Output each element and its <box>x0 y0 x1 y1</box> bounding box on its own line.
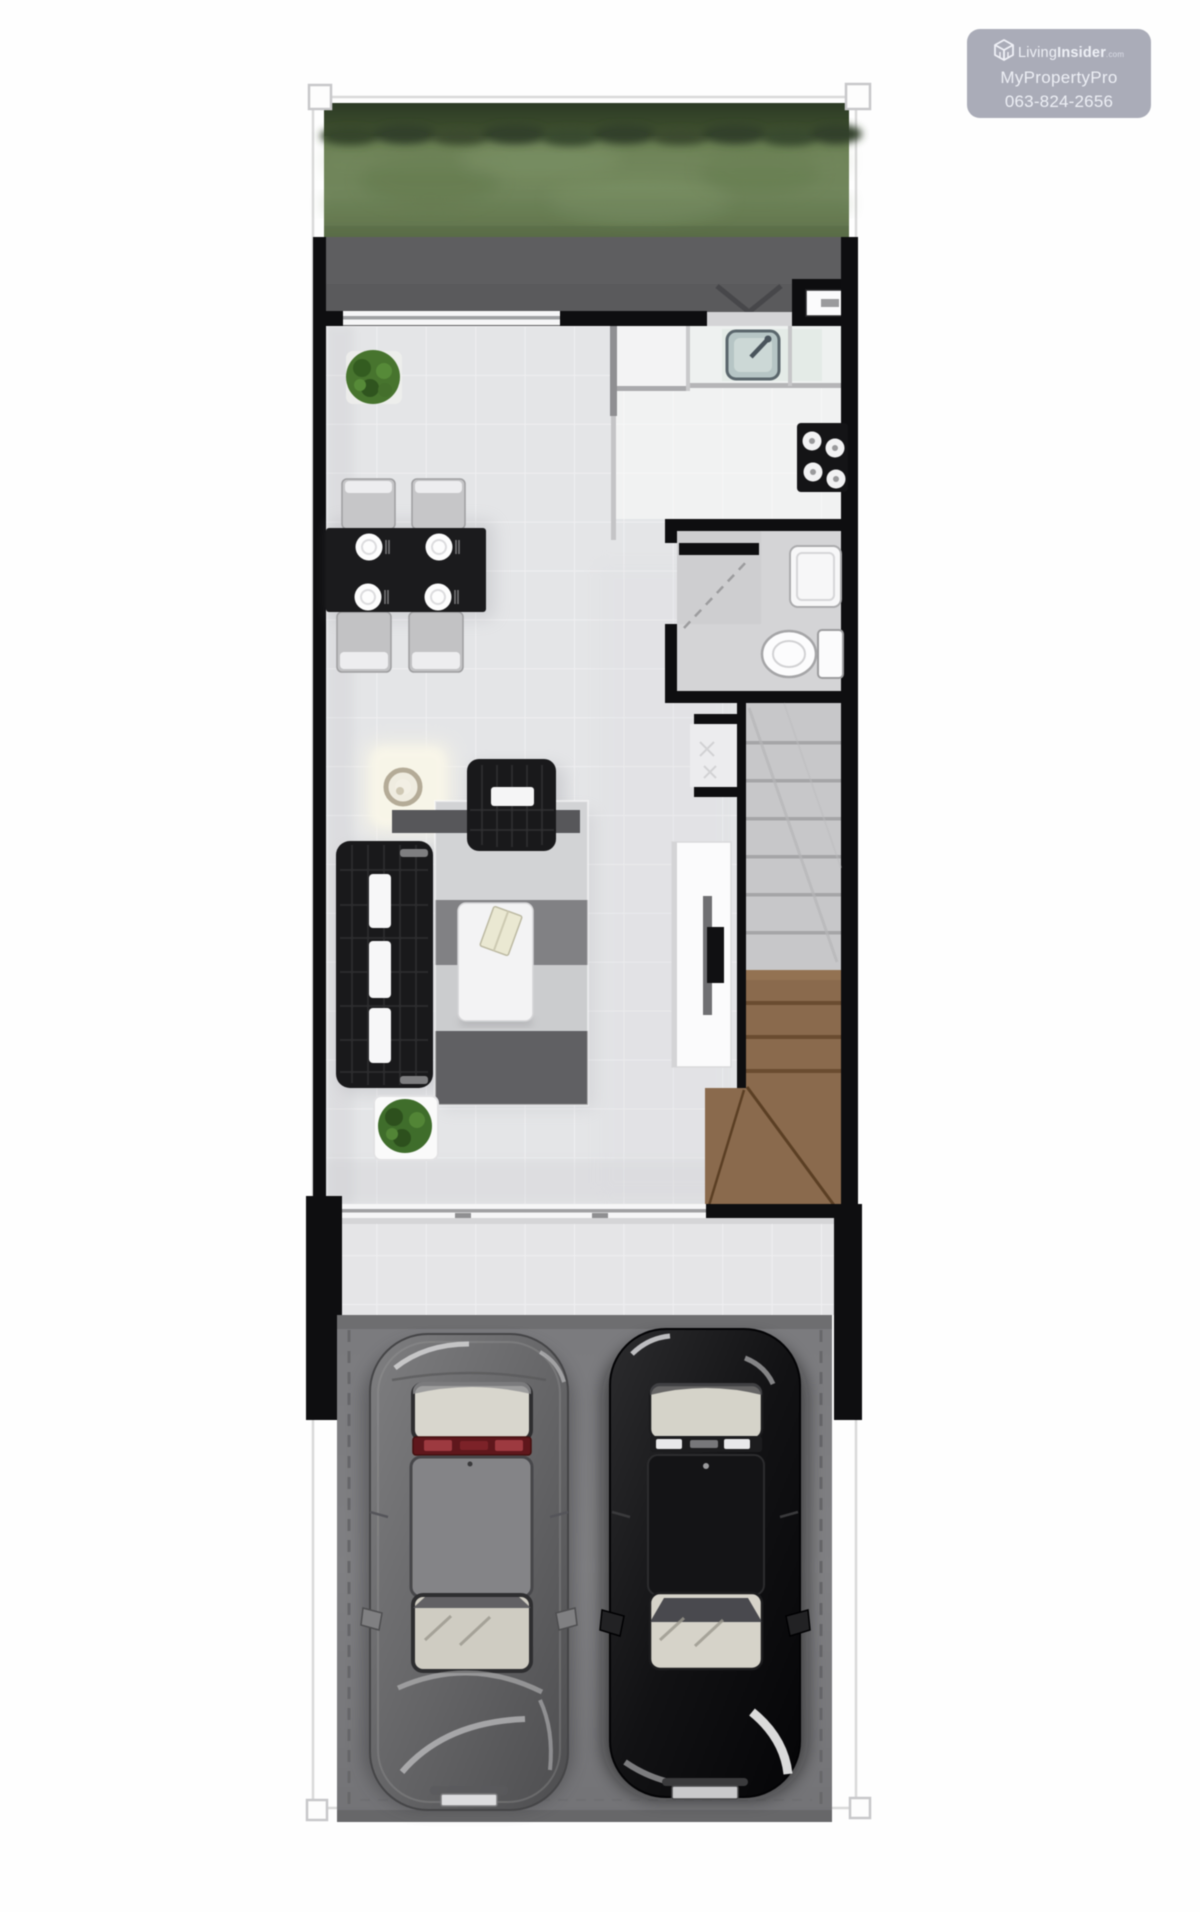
svg-text:MyPropertyPro: MyPropertyPro <box>1000 68 1117 87</box>
svg-text:063-824-2656: 063-824-2656 <box>1005 92 1113 111</box>
